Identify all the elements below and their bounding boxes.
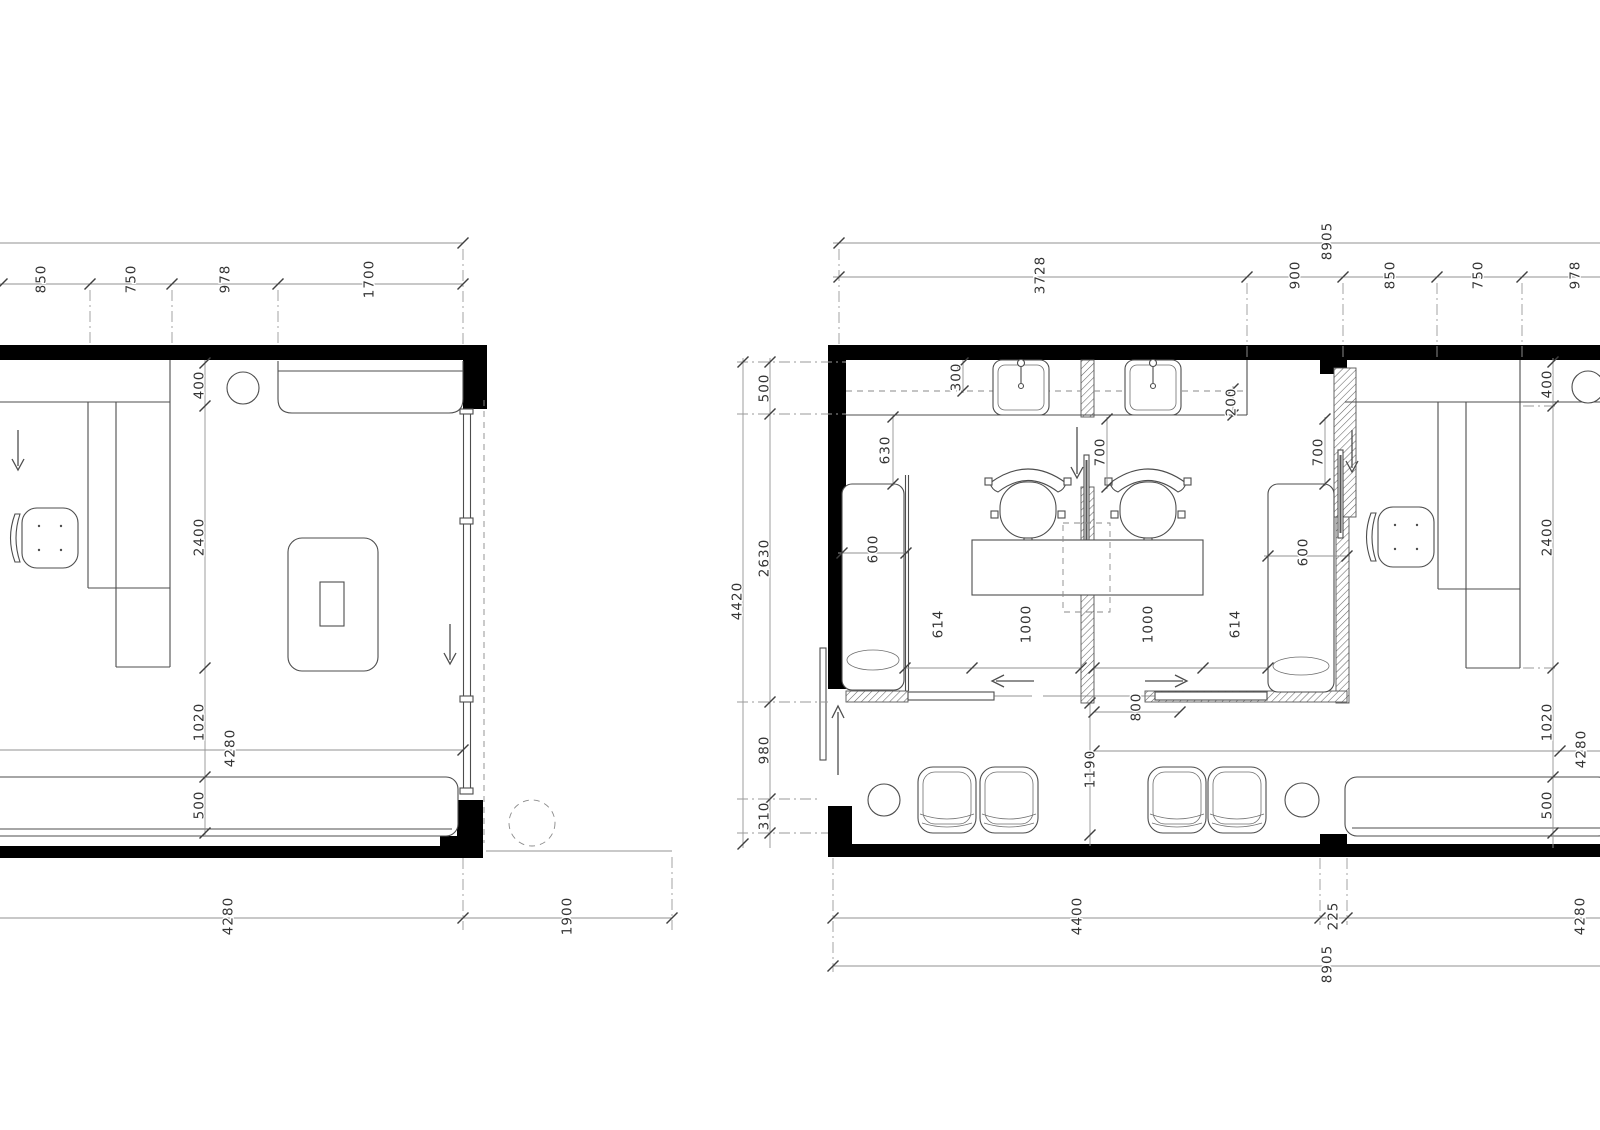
dim-label: 310 [757,802,773,831]
sink-right [1125,360,1181,416]
entry-door-leaf [820,648,826,760]
salon-chair-right [1105,469,1191,544]
dim-label: 4400 [1070,897,1086,935]
plan-right: 8905 3728 900 850 750 978 4420 500 2630 … [730,222,1600,983]
dim-label: 500 [757,374,773,403]
direction-arrow-center [1071,427,1083,478]
waiting-chair [980,767,1038,833]
dim-label: 8905 [1320,945,1336,983]
wall-bottom-step [440,836,457,858]
furniture [0,360,672,851]
wall-pier-bottom-left [828,806,852,845]
dim-label: 300 [949,363,965,392]
dim-label: 1700 [362,260,378,298]
dim-label: 978 [218,265,234,294]
dim-label: 980 [757,736,773,765]
dim-label: 4420 [730,582,746,620]
door-leaf-left [908,692,994,700]
dim-label: 700 [1093,438,1109,467]
wall-top [0,345,487,360]
sofa [0,777,458,836]
door-track-left [846,691,908,702]
dim-label: 2400 [1540,518,1556,556]
dim-label: 225 [1326,902,1342,931]
wall-bottom [0,846,440,858]
counter-sinks [846,360,1247,416]
round-stool [227,372,259,404]
dim-label: 750 [124,265,140,294]
couch-left [842,484,904,690]
couch-right [1268,484,1334,692]
dim-label: 3728 [1033,256,1049,294]
styling-table [972,540,1203,595]
waiting-chair [1148,767,1206,833]
dim-label: 850 [34,265,50,294]
dim-label: 400 [192,371,208,400]
couch-panel-left [906,475,909,691]
partition-center-top [1081,360,1094,417]
dim-label: 4280 [1573,897,1589,935]
center-table [288,538,378,671]
dim-label: 1000 [1019,605,1035,643]
floor-plan-drawing: 850 750 978 1700 400 2400 1020 500 4280 … [0,0,1600,1130]
mirror-right [1338,450,1343,538]
dim-label: 850 [1383,261,1399,290]
direction-arrow-left [12,430,24,470]
dim-label: 500 [192,791,208,820]
side-table-right [1285,783,1319,817]
partition-right-lower [1336,517,1349,703]
sink-left [993,360,1049,416]
dim-label: 2400 [192,518,208,556]
dim-label: 4280 [221,897,237,935]
dim-label: 900 [1288,261,1304,290]
furniture [820,360,1600,837]
direction-arrow-window [444,624,456,664]
dim-label: 630 [878,436,894,465]
partition-right-upper [1334,368,1356,517]
dim-label: 1900 [560,897,576,935]
door-leaf-right [1155,692,1267,700]
dim-label: 8905 [1320,222,1336,260]
wall-bottom [828,844,1600,857]
dim-label: 1020 [192,703,208,741]
dim-label: 400 [1540,370,1556,399]
dim-label: 4280 [1574,730,1590,768]
sofa-right [1345,777,1600,836]
dim-label: 700 [1311,438,1327,467]
dim-label: 600 [1296,538,1312,567]
wall-pier-top-right [463,345,487,409]
dim-label: 1190 [1083,750,1099,788]
dim-label: 750 [1471,261,1487,290]
dim-label: 800 [1129,693,1145,722]
dim-label: 1020 [1540,703,1556,741]
waiting-chair [918,767,976,833]
counter-top-right [278,361,463,413]
dim-label: 4280 [223,729,239,767]
dim-label: 2630 [757,539,773,577]
dim-label: 614 [1228,610,1244,639]
dim-label: 600 [866,535,882,564]
dashed-circle [509,800,555,846]
wall-notch-bottom [1320,834,1347,844]
dim-label: 1000 [1141,605,1157,643]
window-east [460,400,484,843]
round-stool-right [1572,371,1600,403]
dim-label: 614 [931,610,947,639]
office-chair-right [1367,507,1435,567]
direction-arrow-entry [832,706,844,775]
dim-label: 500 [1540,791,1556,820]
direction-arrow-door-left [992,675,1034,687]
side-table-left [868,784,900,816]
direction-arrow-door-right [1145,675,1187,687]
wall-pier-bottom-right [457,800,483,858]
office-chair [11,508,79,568]
wall-top [828,345,1600,360]
dim-label: 978 [1568,261,1584,290]
dim-label: 200 [1224,388,1240,417]
drawing-page: 850 750 978 1700 400 2400 1020 500 4280 … [0,0,1600,1130]
salon-chair-left [985,469,1071,544]
plan-left: 850 750 978 1700 400 2400 1020 500 4280 … [0,238,678,936]
waiting-chair [1208,767,1266,833]
